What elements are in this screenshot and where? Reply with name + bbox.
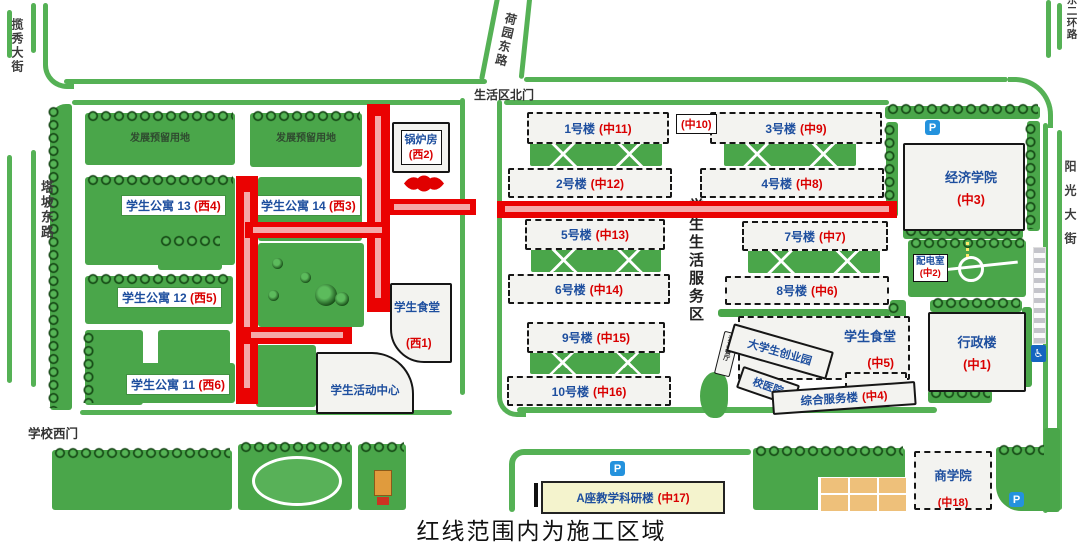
building-code: (中13) (596, 226, 629, 243)
lawn-block (258, 243, 364, 327)
building-code: (中14) (590, 281, 623, 298)
building-code: (中12) (591, 175, 624, 192)
crosswalk (1033, 247, 1046, 344)
building-name: 学生公寓 14 (261, 199, 326, 213)
apartment-11-label: 学生公寓 11 (西6) (127, 375, 229, 394)
courtyard (748, 249, 880, 273)
road-line (43, 3, 48, 58)
west-gate-label: 学校西门 (28, 423, 78, 442)
power-room-label: 配电室 (中2) (913, 254, 948, 282)
construction-line-horizontal-1 (245, 222, 390, 238)
building-code: (中15) (597, 329, 630, 346)
building-code: (西4) (194, 199, 221, 213)
west-zone-east-edge (460, 98, 465, 395)
road-line (523, 449, 751, 455)
road-line (31, 3, 36, 53)
stadium-block (238, 444, 352, 510)
campus-map: 揽秀大街 塔坡东路 荷园东路 东二环路 阳光大街 生活区北门 学校西门 发展预留… (0, 0, 1083, 547)
north-gate-label: 生活区北门 (474, 86, 534, 103)
parking-sign-icon: P (610, 461, 625, 476)
building-name: 7号楼 (784, 228, 815, 245)
dorm-6: 6号楼 (中14) (508, 274, 670, 304)
eye-icon (403, 170, 445, 197)
building-name: 商学院 (934, 465, 972, 484)
lawn-blob (700, 372, 728, 418)
road-label-tapo: 塔坡东路 (40, 180, 53, 244)
apartment-13-label: 学生公寓 13 (西4) (122, 196, 225, 215)
lawn-block (1044, 428, 1060, 512)
courtyard (530, 351, 660, 374)
dorm-7: 7号楼 (中7) (742, 221, 888, 251)
accessible-sign-icon: ♿ (1031, 345, 1046, 362)
dorm-5: 5号楼 (中13) (525, 219, 665, 250)
building-name: 学生食堂 (844, 326, 896, 345)
boiler-house: 锅炉房 (西2) (392, 122, 450, 173)
lawn-block (1027, 121, 1040, 231)
road-line (64, 79, 487, 84)
dorm-8: 8号楼 (中6) (725, 276, 889, 305)
accessible-glyph: ♿ (1034, 347, 1044, 360)
construction-line-horizontal-2 (388, 199, 476, 215)
building-name: 配电室 (916, 256, 945, 268)
admin-building: 行政楼 (中1) (928, 312, 1026, 392)
west-canteen: 学生食堂 (西1) (390, 283, 452, 363)
reserved-land-label: 发展预留用地 (85, 113, 235, 144)
building-name: 8号楼 (776, 282, 807, 299)
central-zone-top-edge (504, 100, 889, 105)
apartment-14-label: 学生公寓 14 (西3) (257, 196, 360, 215)
building-code: (中16) (593, 383, 626, 400)
lawn-block (885, 106, 1040, 119)
code10-label: (中10) (676, 114, 717, 134)
basketball-courts (818, 477, 908, 512)
reserved-land-b: 发展预留用地 (250, 113, 362, 167)
building-code: (中6) (811, 282, 838, 299)
building-name: A座教学科研楼 (576, 490, 653, 506)
building-code: (中9) (800, 120, 827, 137)
construction-line-horizontal-4 (497, 201, 897, 218)
courtyard (531, 248, 661, 272)
building-name: 学生活动中心 (331, 382, 400, 398)
lawn-block (52, 450, 232, 510)
building-code: (中17) (658, 490, 690, 506)
dorm-2: 2号楼 (中12) (508, 168, 672, 198)
building-name: 锅炉房 (405, 133, 438, 147)
road-line (31, 150, 36, 387)
building-code: (中11) (599, 120, 632, 137)
building-name: 学生食堂 (394, 299, 440, 315)
building-name: 学生公寓 11 (131, 378, 195, 392)
courtyard (530, 142, 662, 166)
dorm-9: 9号楼 (中15) (527, 322, 665, 353)
lawn-block (158, 238, 222, 270)
dorm-10: 10号楼 (中16) (507, 376, 671, 406)
building-code: (中4) (861, 387, 888, 405)
lawn-block (50, 104, 72, 410)
road-line (1057, 3, 1062, 50)
economics-college: 经济学院 (中3) (903, 143, 1025, 231)
building-code: (中5) (867, 354, 894, 371)
building-code: (西5) (190, 291, 217, 305)
zone-label: 学生生活服务区 (688, 198, 703, 348)
parking-sign-icon: P (925, 120, 940, 135)
building-code: (中1) (963, 354, 991, 373)
reserved-land-a: 发展预留用地 (85, 113, 235, 165)
road-line (7, 155, 12, 383)
building-name: 经济学院 (945, 167, 997, 186)
building-code: (西6) (198, 378, 225, 392)
building-name: 学生公寓 12 (122, 291, 187, 305)
building-code: (中2) (916, 268, 945, 280)
tree-icon (315, 284, 337, 306)
parking-sign-icon: P (1009, 492, 1024, 507)
building-name: 9号楼 (562, 329, 593, 346)
construction-line-vertical-1 (367, 104, 390, 312)
lawn-block (256, 345, 316, 407)
building-name: 学生公寓 13 (126, 199, 191, 213)
building-code: (中8) (796, 175, 823, 192)
tree-icon (300, 272, 311, 283)
road-label-yangguang: 阳光大街 (1064, 160, 1076, 270)
courtyard (724, 142, 856, 166)
activity-center: 学生活动中心 (316, 352, 414, 414)
building-name: 综合服务楼 (800, 389, 858, 409)
dorm-3: 3号楼 (中9) (710, 112, 882, 144)
building-code: (中3) (957, 189, 985, 208)
map-caption: 红线范围内为施工区域 (0, 512, 1083, 546)
building-code: (中10) (681, 119, 712, 131)
building-name: 行政楼 (957, 332, 996, 351)
tree-icon (335, 292, 349, 306)
dorm-1: 1号楼 (中11) (527, 112, 669, 144)
west-zone-top-edge (72, 100, 462, 105)
building-code: (西1) (406, 335, 432, 351)
reserved-land-label: 发展预留用地 (250, 113, 362, 144)
tree-icon (268, 290, 279, 301)
road-label-ring: 东二环路 (1066, 0, 1077, 46)
road-line (524, 77, 1008, 82)
building-name: 1号楼 (564, 120, 595, 137)
dorm-4: 4号楼 (中8) (700, 168, 884, 198)
road-label-lanxiu: 揽秀大街 (11, 18, 23, 78)
wall-mark (534, 483, 538, 507)
road-label-heyuan: 荷园东路 (492, 11, 517, 72)
business-school: 商学院 (中18) (914, 451, 992, 510)
road-line (1046, 0, 1051, 58)
building-code: (西3) (329, 199, 356, 213)
building-name: 6号楼 (555, 281, 586, 298)
building-name: 4号楼 (761, 175, 792, 192)
road-line-heyuan-east (519, 0, 533, 79)
research-building-a: A座教学科研楼 (中17) (541, 481, 725, 514)
building-name: 5号楼 (561, 226, 592, 243)
building-code: (中7) (819, 228, 846, 245)
tree-icon (272, 258, 283, 269)
construction-line-vertical-2 (236, 176, 258, 404)
building-code: (西2) (405, 148, 438, 162)
building-name: 10号楼 (552, 383, 589, 400)
building-code: (中18) (938, 494, 969, 510)
apartment-12-label: 学生公寓 12 (西5) (118, 288, 221, 307)
lawn-block (930, 300, 1022, 312)
lawn-block (358, 444, 406, 510)
construction-line-horizontal-3 (243, 327, 352, 344)
central-zone-west-edge (497, 100, 502, 390)
building-name: 3号楼 (765, 120, 796, 137)
road-line (509, 464, 515, 512)
building-name: 2号楼 (556, 175, 587, 192)
